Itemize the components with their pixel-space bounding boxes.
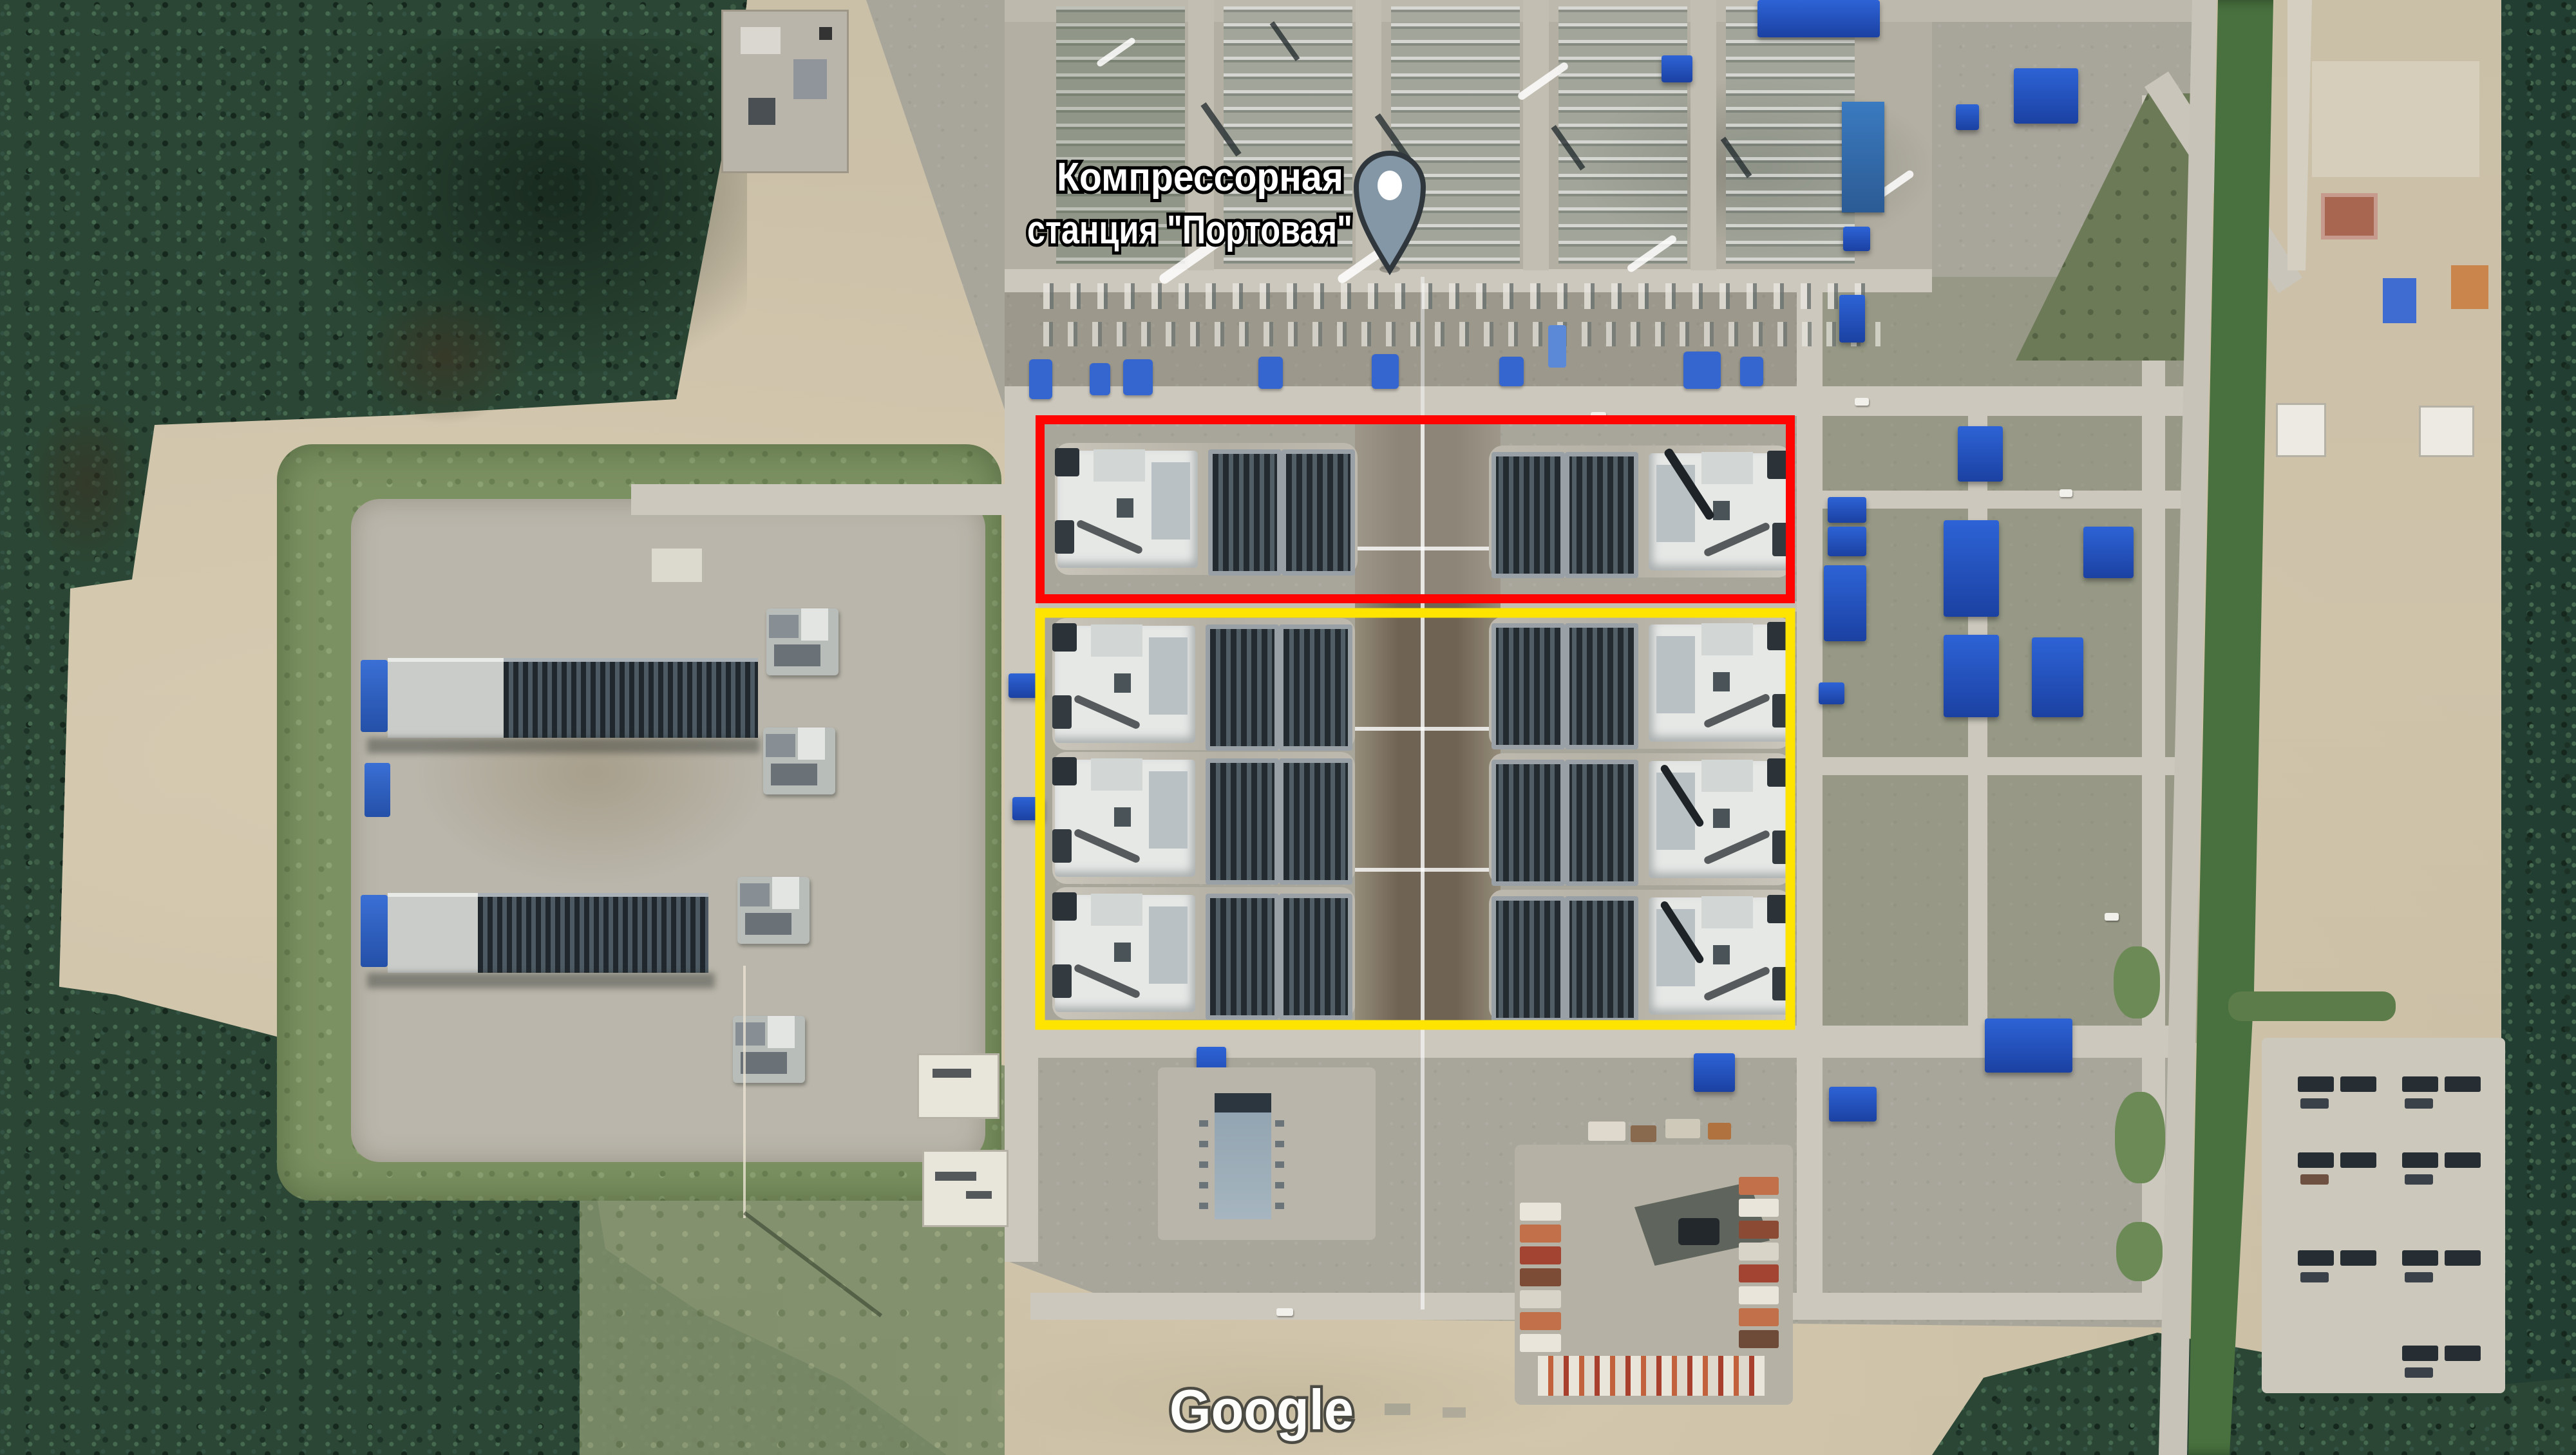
yellow-annotation-box [1040, 613, 1790, 1025]
red-annotation-box [1040, 420, 1790, 599]
place-label-line1[interactable]: Компрессорная [1057, 155, 1343, 200]
map-pin-icon[interactable] [1356, 153, 1423, 273]
place-label-line2[interactable]: станция "Портовая" [1027, 208, 1352, 252]
map-overlay: Компрессорная станция "Портовая" Google [0, 0, 2576, 1455]
google-watermark[interactable]: Google [1170, 1378, 1354, 1441]
satellite-map[interactable]: Компрессорная станция "Портовая" Google [0, 0, 2576, 1455]
